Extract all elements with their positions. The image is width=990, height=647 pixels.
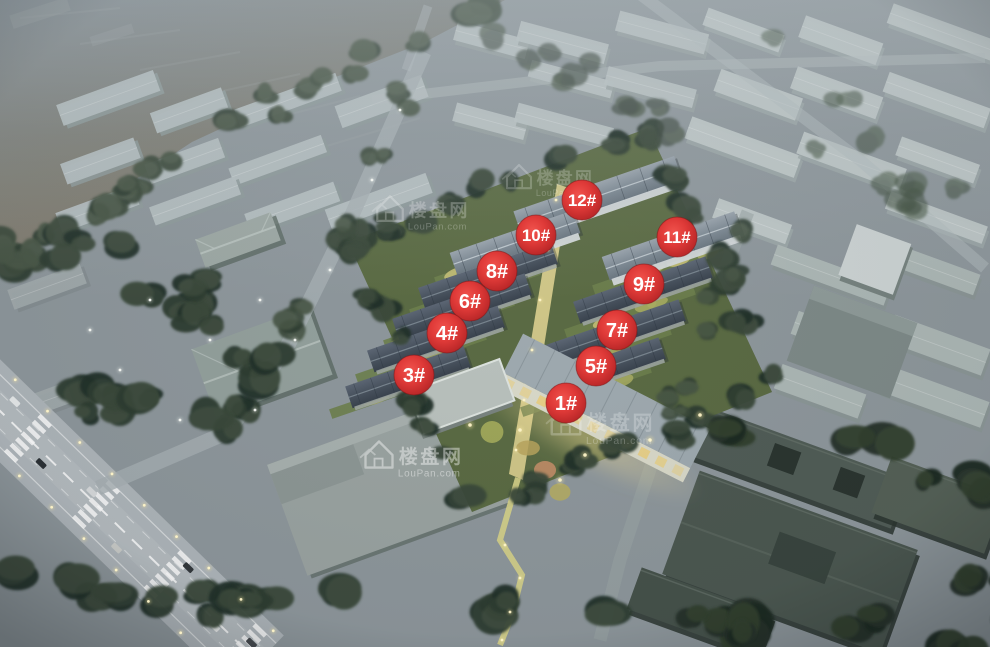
watermark-text-cn: 楼盘网 [409,200,470,221]
watermark-text-cn: 楼盘网 [399,445,464,468]
aerial-development-render: 楼盘网LouPan.com楼盘网LouPan.com楼盘网LouPan.com楼… [0,0,990,647]
marker-label: 12# [568,191,597,210]
building-marker-12: 12# [562,180,602,220]
watermark-text-en: LouPan.com [408,221,467,231]
marker-label: 4# [436,323,458,345]
building-marker-11: 11# [657,217,697,257]
building-marker-3: 3# [394,355,434,395]
marker-label: 10# [522,226,551,245]
building-marker-5: 5# [576,346,616,386]
building-marker-9: 9# [624,264,664,304]
watermark-text-en: LouPan.com [398,469,461,480]
marker-label: 6# [459,291,481,313]
building-marker-4: 4# [427,313,467,353]
building-marker-10: 10# [516,215,556,255]
marker-label: 11# [663,228,691,247]
watermark-text-en: LouPan.com [586,436,652,447]
marker-label: 7# [606,320,628,342]
marker-label: 5# [585,356,607,378]
building-marker-8: 8# [477,251,517,291]
marker-label: 8# [486,261,508,283]
building-marker-7: 7# [597,310,637,350]
render-canvas: 楼盘网LouPan.com楼盘网LouPan.com楼盘网LouPan.com楼… [0,0,990,647]
haze-and-lights [0,0,990,647]
marker-label: 1# [555,393,577,415]
marker-label: 9# [633,274,655,296]
building-marker-1: 1# [546,383,586,423]
watermark-text-cn: 楼盘网 [587,411,655,435]
marker-label: 3# [403,365,425,387]
